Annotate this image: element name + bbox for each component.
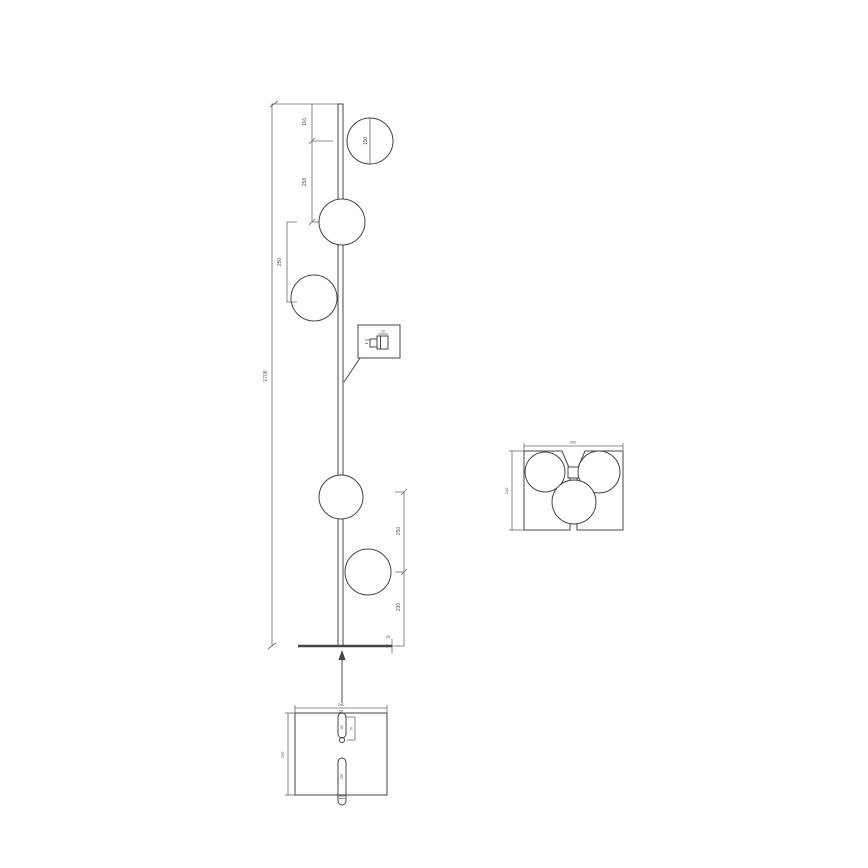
globe-5 [345, 549, 391, 595]
overall-height-label: 1708 [263, 370, 269, 381]
second-spacing-label: 250 [277, 258, 283, 267]
base-width-dimension: 290 28 [295, 702, 387, 714]
plate-thickness-dimension: 25 [381, 634, 392, 653]
lamp-pole [338, 104, 343, 646]
bottom-slot-label: 150 [340, 774, 344, 780]
top-offset-label: 116 [302, 118, 308, 126]
first-spacing-label: 258 [302, 178, 308, 187]
globe-diameter-label: 150 [363, 137, 369, 146]
hole-offset-label: 70 [350, 727, 354, 731]
lower-spacing-dimension: 250 230 [392, 489, 407, 646]
bottom-slot [338, 758, 346, 805]
switch-detail-callout: 20 [344, 325, 400, 382]
hole-offset-dimension: 70 [346, 717, 355, 740]
base-depth-label: 250 [280, 751, 285, 758]
technical-drawing-page: 1708 116 258 150 250 [0, 0, 868, 868]
top-depth-label: 240 [504, 487, 509, 494]
globe-1: 150 [347, 118, 393, 164]
slot-edge-ticks [339, 796, 345, 799]
detail-box [358, 325, 400, 358]
cord-switch-icon: 20 [365, 330, 388, 350]
base-width-label: 290 [338, 702, 345, 707]
top-width-label: 300 [570, 440, 577, 445]
assembly-arrow [338, 650, 345, 703]
switch-width-label: 20 [381, 330, 385, 334]
globe-3 [291, 275, 337, 321]
side-view: 1708 116 258 150 250 [263, 101, 407, 703]
top-width-dimension: 300 [524, 440, 623, 452]
globe-2 [319, 199, 365, 245]
leader-line [344, 358, 360, 382]
top-depth-dimension: 240 [504, 451, 524, 530]
top-globe-front [552, 480, 596, 524]
overall-height-dimension: 1708 [263, 101, 338, 649]
globe-4 [319, 475, 363, 519]
plate-thickness-label: 25 [386, 634, 391, 639]
floor-spacing-label: 230 [396, 603, 402, 612]
base-depth-dimension: 250 [280, 713, 295, 795]
floor-lamp-drawing: 1708 116 258 150 250 [0, 0, 868, 868]
pole-cross-section [568, 467, 579, 478]
top-view: 300 240 [504, 440, 623, 531]
base-plan-view: 290 28 250 80 70 150 [280, 702, 387, 805]
fourth-spacing-label: 250 [396, 527, 402, 536]
top-slot-label: 80 [340, 725, 344, 729]
